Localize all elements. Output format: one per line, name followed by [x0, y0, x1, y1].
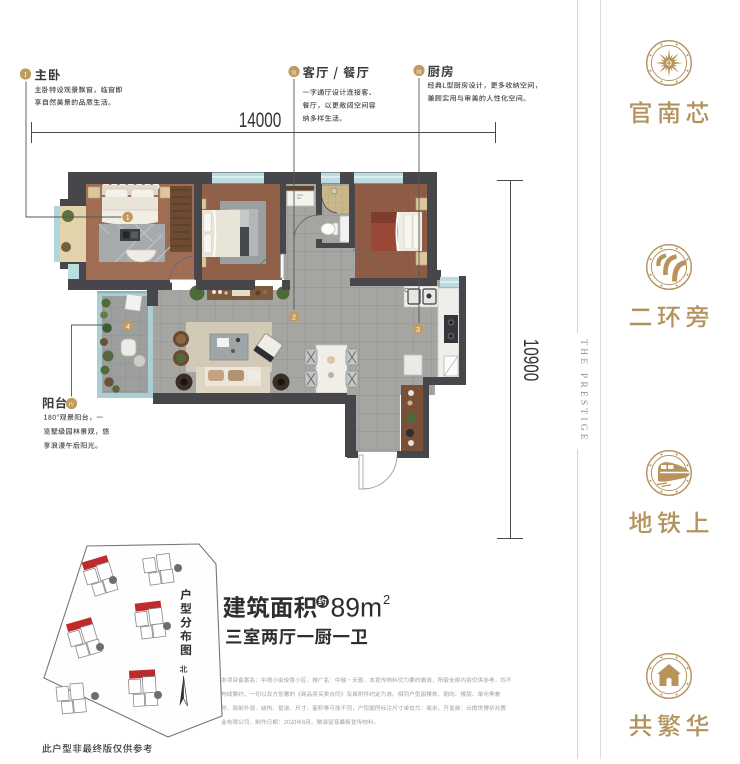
svg-text:THE PRESTIGE: THE PRESTIGE	[578, 339, 588, 443]
svg-text:IV: IV	[69, 402, 75, 408]
svg-text:14000: 14000	[239, 108, 282, 132]
svg-text:2: 2	[292, 312, 296, 321]
svg-text:10900: 10900	[519, 339, 543, 382]
svg-text:III: III	[416, 69, 422, 75]
svg-text:1: 1	[126, 213, 130, 222]
svg-text:4: 4	[126, 322, 130, 331]
svg-text:89m: 89m	[331, 593, 383, 623]
svg-text:3: 3	[416, 325, 420, 334]
svg-text:2: 2	[383, 592, 390, 607]
svg-text:II: II	[292, 69, 296, 76]
